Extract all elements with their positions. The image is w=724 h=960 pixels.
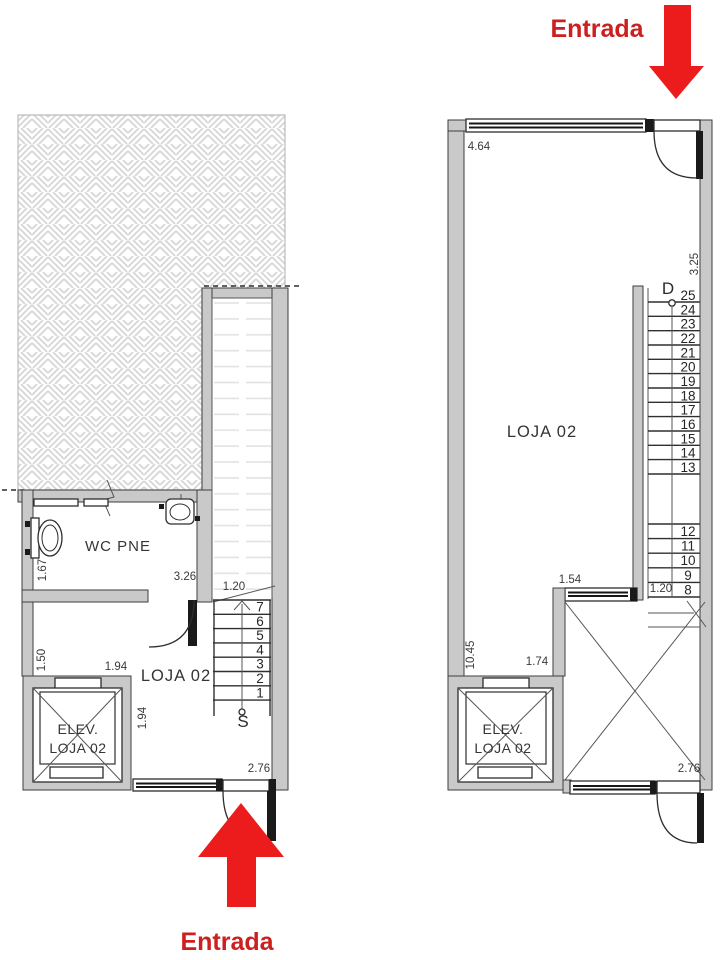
elevator-label-line1: ELEV. xyxy=(483,721,524,737)
wc-bottom-wall xyxy=(22,590,148,602)
wc-room-label: WC PNE xyxy=(85,538,151,555)
stair-step-numbers-upper: 25242322212019181716151413 xyxy=(680,288,696,475)
stair-step-number: 8 xyxy=(684,582,692,597)
stair-step-number: 24 xyxy=(680,302,696,317)
void-dividing-wall xyxy=(553,588,565,676)
hatched-area xyxy=(18,115,285,490)
dim-elev-depth: 1.94 xyxy=(137,706,149,729)
mid-window xyxy=(565,588,637,601)
stair-step-number: 18 xyxy=(680,388,695,403)
dim-window-width: 1.54 xyxy=(559,574,582,586)
stair-step-numbers: 7654321 xyxy=(256,600,264,701)
elevator-label-line2: LOJA 02 xyxy=(49,740,106,756)
ground-floor-plan: 7654321 xyxy=(2,115,302,841)
stair-step-number: 11 xyxy=(681,539,695,554)
entrance-label-top: Entrada xyxy=(550,15,644,43)
elevator-label-line2: LOJA 02 xyxy=(474,740,531,756)
stair-step-number: 7 xyxy=(256,600,264,615)
storefront-window-bottom xyxy=(563,780,655,794)
stair-step-number: 19 xyxy=(680,374,695,389)
stair-step-number: 22 xyxy=(680,331,695,346)
stair-step-number: 9 xyxy=(684,568,692,583)
grab-bars xyxy=(34,499,108,506)
dim-wc-height: 1.67 xyxy=(37,559,49,581)
wc-right-wall xyxy=(197,490,212,602)
elevator-label-line1: ELEV. xyxy=(58,721,99,737)
stair-step-number: 5 xyxy=(256,628,264,643)
stair-treads-right-column xyxy=(246,302,271,590)
stair-step-number: 13 xyxy=(680,460,695,475)
stair-shaft-upper xyxy=(212,298,272,598)
door-leaf xyxy=(267,791,276,841)
stair-step-number: 1 xyxy=(256,685,264,700)
stair-step-number: 4 xyxy=(256,642,264,657)
dim-elev-width: 1.74 xyxy=(526,656,549,668)
void-cross xyxy=(565,602,705,780)
stairs-direction-label: D xyxy=(662,279,674,298)
dim-stair-width: 1.20 xyxy=(223,581,245,593)
top-window xyxy=(466,119,654,132)
dim-elev-width: 1.94 xyxy=(105,661,128,673)
stair-treads-left-column xyxy=(214,302,239,590)
right-outer-wall xyxy=(272,288,288,790)
dim-door-width: 2.76 xyxy=(248,763,270,775)
stairs-direction-label: S xyxy=(237,712,248,731)
dim-top-width: 4.64 xyxy=(468,141,491,153)
stair-step-number: 3 xyxy=(256,657,264,672)
counterweight xyxy=(478,767,532,778)
stair-step-number: 2 xyxy=(256,671,264,686)
stair-wall xyxy=(633,286,643,600)
stair-step-number: 10 xyxy=(680,553,695,568)
stair-step-number: 23 xyxy=(680,317,695,332)
storefront-window xyxy=(133,779,222,791)
stair-step-number: 21 xyxy=(680,345,695,360)
stair-step-number: 6 xyxy=(256,614,264,629)
stair-step-number: 25 xyxy=(680,288,695,303)
dim-stair-width: 1.20 xyxy=(650,583,672,595)
loja-room-label: LOJA 02 xyxy=(507,423,577,441)
stair-step-numbers-lower: 12111098 xyxy=(680,524,695,597)
door-leaf xyxy=(696,131,703,179)
floor-plan-page: 7654321 xyxy=(0,0,724,960)
interior-door[interactable] xyxy=(149,600,197,647)
upper-floor-plan: 25242322212019181716151413 12111098 xyxy=(448,119,712,843)
loja-room-label: LOJA 02 xyxy=(141,667,211,685)
stair-step-number: 17 xyxy=(680,403,695,418)
door-leaf xyxy=(697,793,704,843)
entrance-label-bottom: Entrada xyxy=(180,928,274,956)
stair-step-number: 20 xyxy=(680,360,695,375)
dim-elev-height: 1.50 xyxy=(36,649,48,671)
stair-walk-line xyxy=(234,601,250,715)
stair-step-number: 15 xyxy=(680,431,695,446)
dim-left-height: 10.45 xyxy=(465,641,477,670)
counterweight xyxy=(50,767,103,778)
entrance-door-top[interactable] xyxy=(654,120,703,179)
stair-step-number: 14 xyxy=(680,446,696,461)
toilet-icon xyxy=(25,518,62,558)
floor-plans-canvas: 7654321 xyxy=(0,0,724,960)
stair-step-number: 16 xyxy=(680,417,695,432)
dim-right-depth: 3.25 xyxy=(689,253,701,275)
entrance-door-bottom[interactable] xyxy=(650,781,704,843)
entrance-arrow-top xyxy=(649,5,704,99)
stair-step-number: 12 xyxy=(680,524,695,539)
right-outer-wall xyxy=(700,120,712,790)
dim-door-width: 2.76 xyxy=(678,763,700,775)
dim-wc-width: 3.26 xyxy=(174,571,196,583)
